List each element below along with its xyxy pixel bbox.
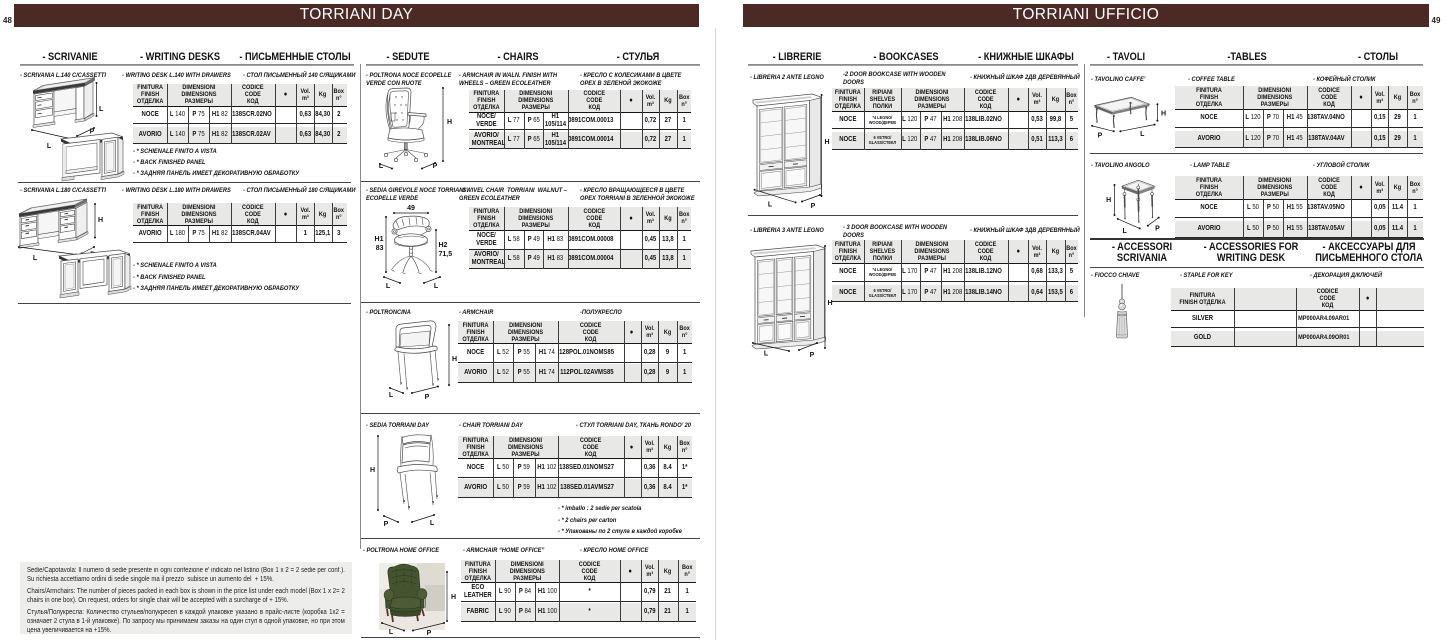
svg-text:83: 83 (376, 245, 384, 252)
svg-text:L: L (764, 351, 769, 358)
svg-text:H: H (1161, 111, 1166, 118)
svg-text:H2: H2 (439, 242, 448, 249)
svg-text:P: P (810, 352, 815, 359)
svg-text:L: L (99, 106, 104, 113)
svg-text:H: H (98, 217, 103, 224)
svg-text:L: L (1140, 131, 1145, 138)
svg-text:H: H (1106, 197, 1111, 204)
svg-text:L: L (33, 255, 38, 262)
svg-text:H: H (825, 139, 830, 146)
svg-text:H: H (452, 356, 457, 363)
svg-text:H: H (451, 594, 456, 601)
svg-text:P: P (433, 163, 438, 170)
svg-text:71,5: 71,5 (439, 251, 453, 258)
svg-text:P: P (384, 521, 389, 528)
svg-text:L: L (386, 283, 391, 290)
svg-text:H: H (447, 119, 452, 126)
svg-text:P: P (425, 394, 430, 401)
svg-text:P: P (1098, 132, 1103, 139)
svg-text:L: L (768, 202, 773, 209)
svg-text:49: 49 (407, 205, 415, 212)
svg-text:L: L (1122, 228, 1127, 235)
svg-text:L: L (47, 143, 52, 150)
svg-text:P: P (427, 630, 432, 637)
svg-text:H: H (828, 300, 833, 307)
svg-text:P: P (1155, 226, 1160, 233)
svg-text:L: L (430, 520, 435, 527)
svg-text:L: L (434, 283, 439, 290)
svg-text:H1: H1 (375, 236, 384, 243)
svg-text:L: L (389, 629, 394, 636)
svg-text:H: H (370, 467, 375, 474)
svg-text:P: P (811, 203, 816, 210)
svg-text:L: L (389, 392, 394, 399)
svg-text:L: L (379, 163, 384, 170)
